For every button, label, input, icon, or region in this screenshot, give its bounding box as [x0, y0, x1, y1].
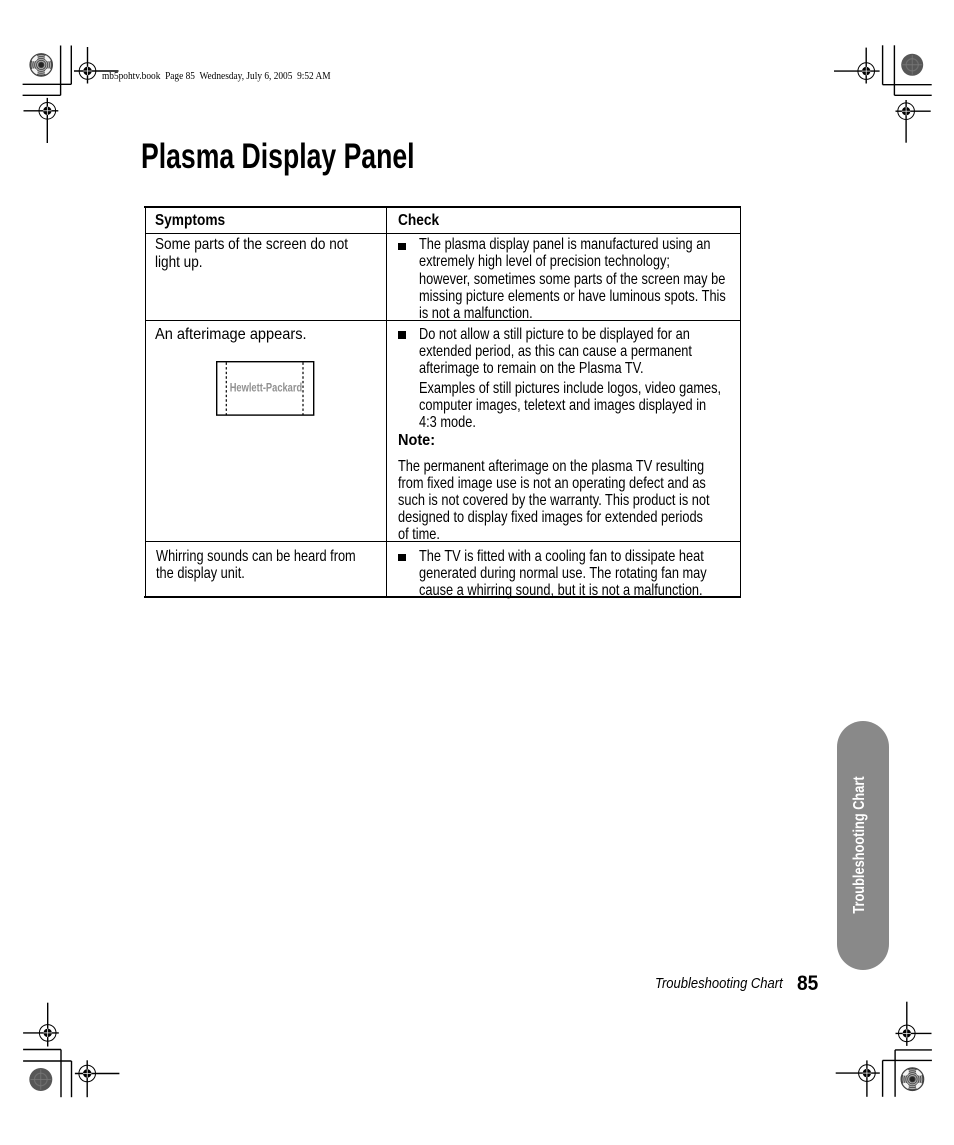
svg-text:Hewlett-Packard: Hewlett-Packard [229, 381, 302, 395]
